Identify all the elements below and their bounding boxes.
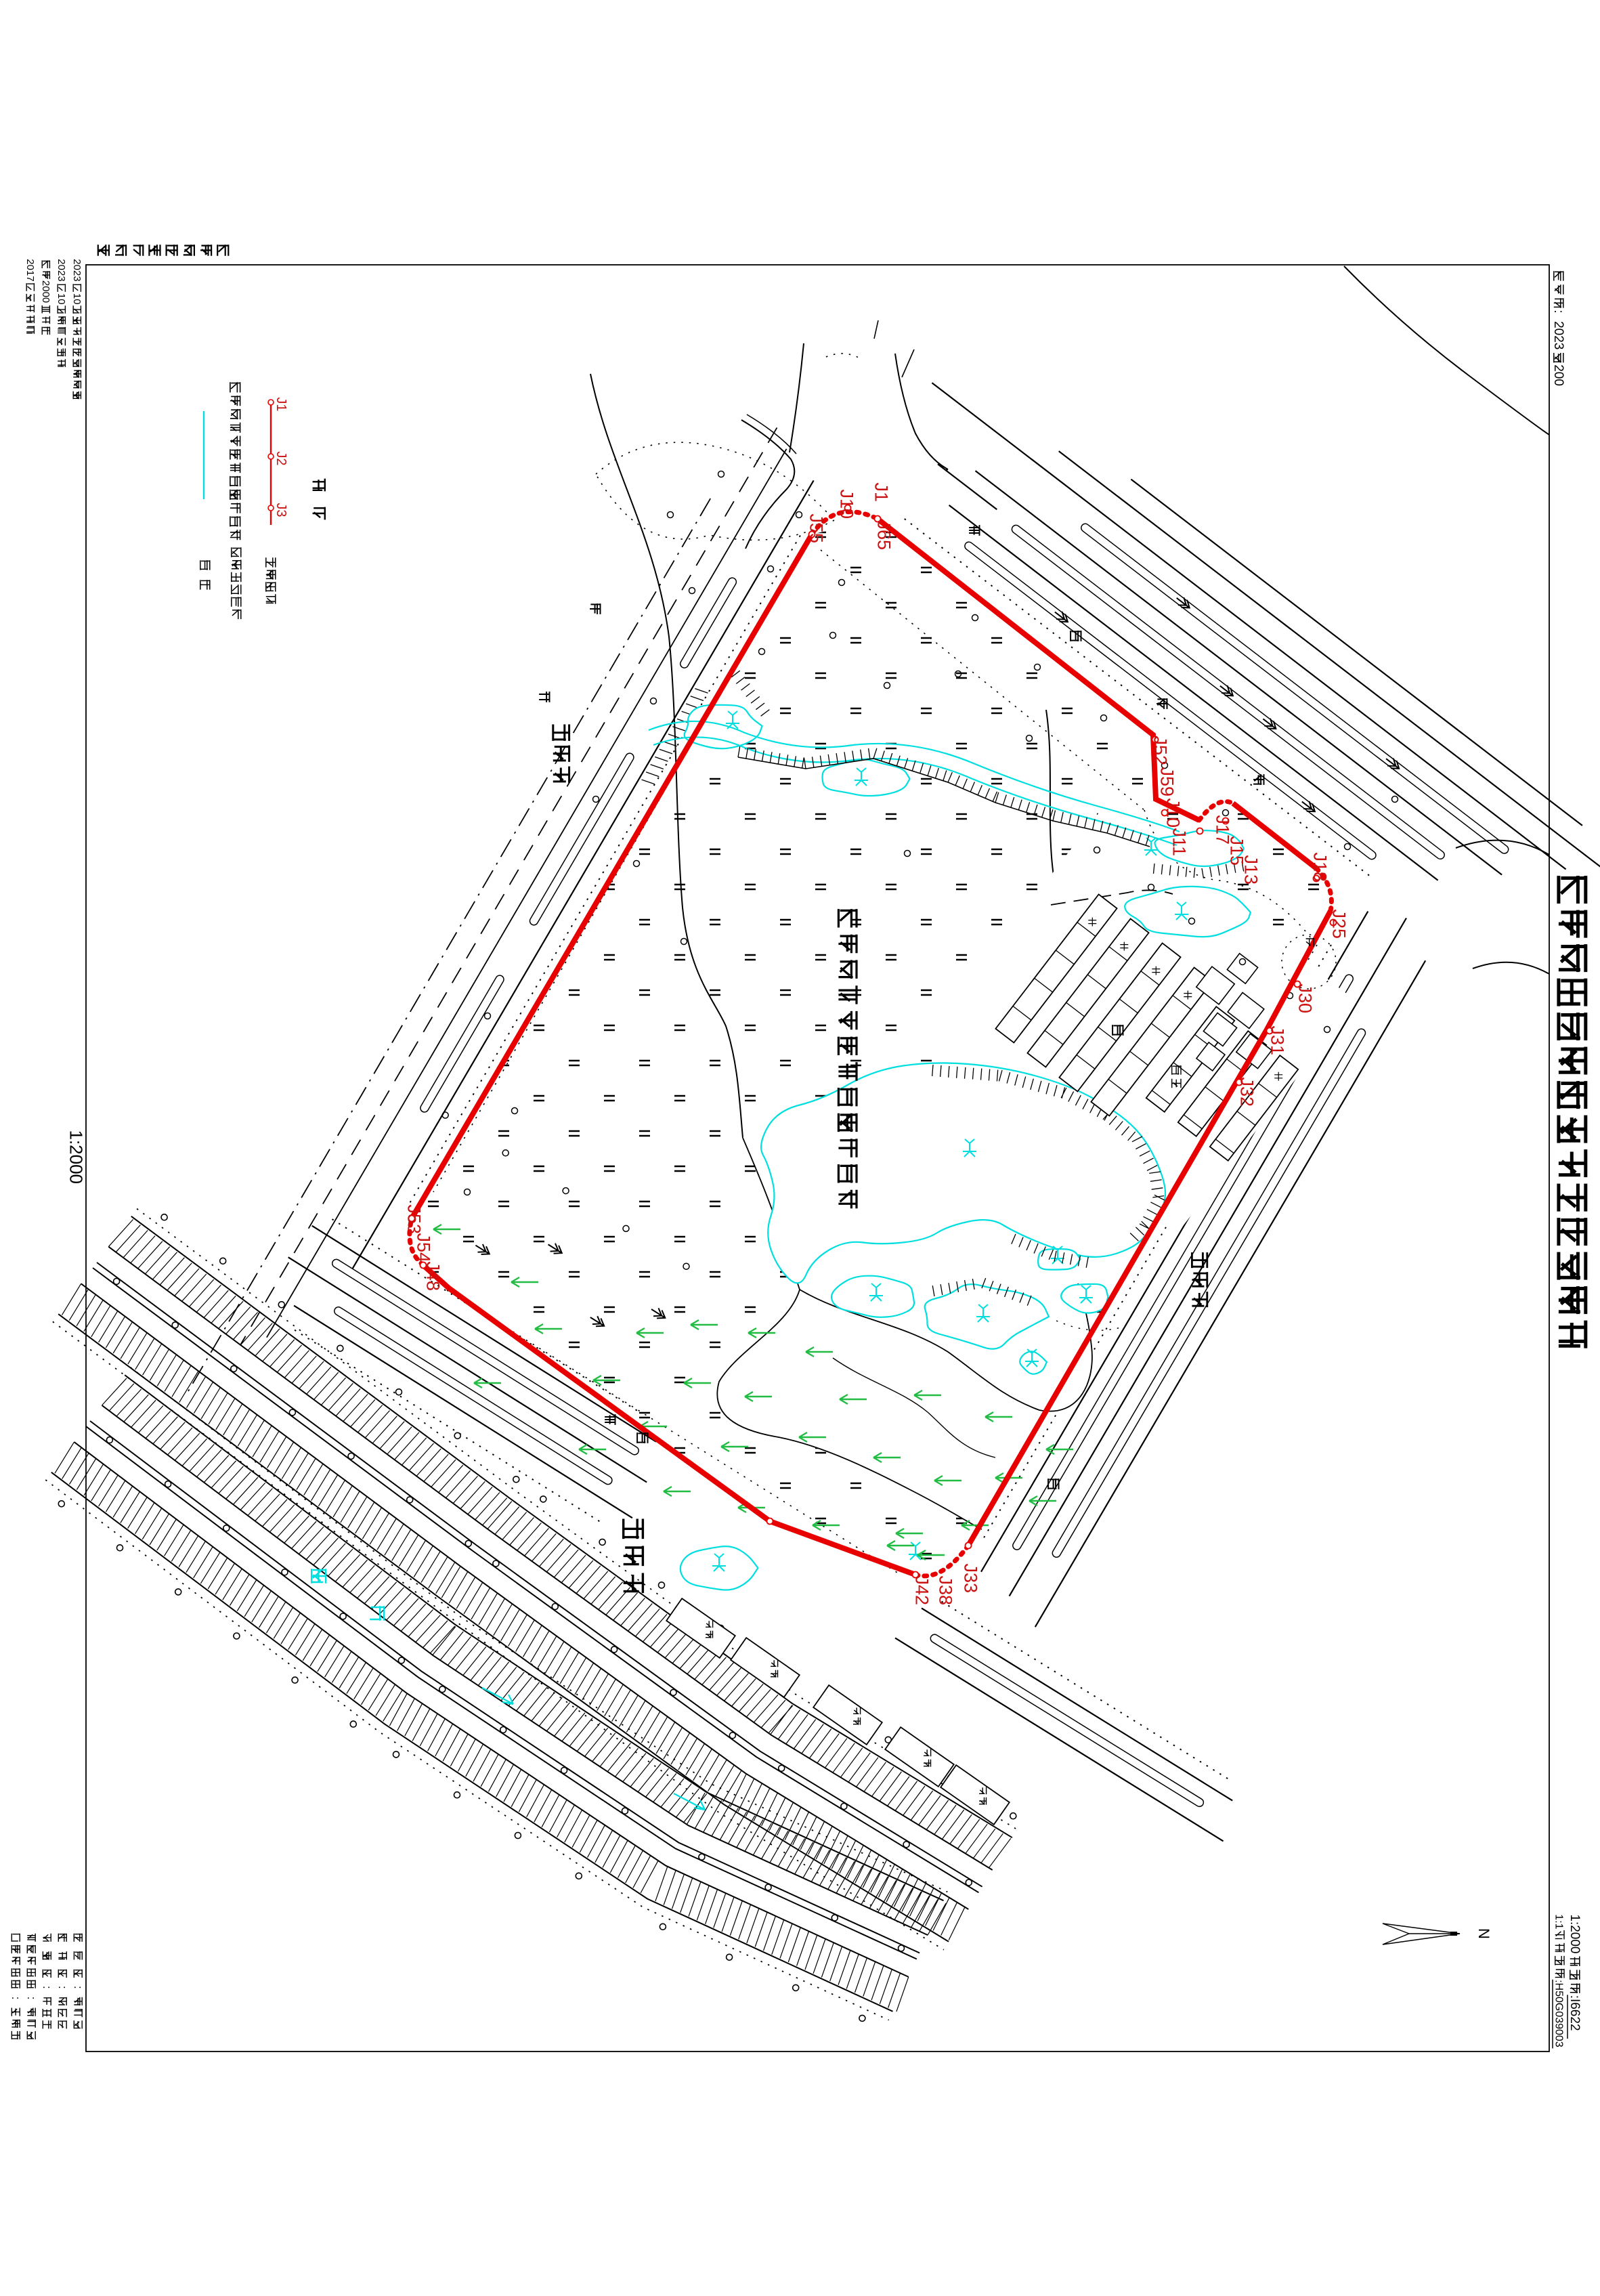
svg-text:J33: J33 (961, 1564, 981, 1594)
svg-text:J48: J48 (423, 1262, 444, 1292)
svg-text:N: N (1475, 1928, 1492, 1939)
svg-text::H50G039003: :H50G039003 (1553, 1980, 1565, 2047)
svg-text:J2: J2 (274, 451, 288, 465)
svg-text:2000: 2000 (40, 280, 51, 303)
svg-text:J54: J54 (414, 1233, 434, 1263)
svg-text:J52: J52 (1150, 736, 1171, 766)
svg-text:J55: J55 (806, 514, 827, 544)
svg-text:J32: J32 (1237, 1078, 1257, 1107)
svg-text:10: 10 (71, 293, 83, 305)
svg-text:1:1: 1:1 (1553, 1914, 1565, 1929)
svg-text::: : (41, 1986, 53, 1989)
svg-text:1:2000: 1:2000 (1567, 1914, 1582, 1953)
svg-text:J1: J1 (274, 397, 288, 411)
svg-text:J1: J1 (871, 483, 892, 503)
svg-text:2017: 2017 (24, 259, 36, 281)
svg-text:2023: 2023 (1551, 321, 1565, 349)
svg-text:J31: J31 (1268, 1026, 1288, 1056)
svg-text::: : (25, 1997, 38, 2000)
svg-text:1:2000: 1:2000 (66, 1130, 87, 1185)
svg-text:J59: J59 (1157, 767, 1177, 797)
svg-text:2023: 2023 (56, 259, 67, 281)
svg-text:J65: J65 (874, 521, 894, 551)
svg-text:J10: J10 (837, 490, 857, 519)
svg-text:J53: J53 (404, 1205, 425, 1235)
svg-text:J25: J25 (1329, 910, 1349, 939)
svg-text:J3: J3 (274, 503, 288, 517)
svg-text::: : (56, 1986, 69, 1989)
svg-text::: : (72, 1986, 85, 1989)
svg-text:200: 200 (1551, 364, 1565, 386)
svg-text:J42: J42 (912, 1576, 932, 1606)
svg-text::: : (1551, 310, 1565, 313)
svg-text:J18: J18 (1310, 853, 1331, 883)
svg-text::: : (9, 1997, 22, 2000)
svg-text:2023: 2023 (71, 259, 83, 281)
svg-text::I6622: :I6622 (1567, 1995, 1582, 2031)
svg-text:J10: J10 (1163, 799, 1184, 828)
svg-text:J38: J38 (936, 1576, 956, 1606)
svg-text:10: 10 (56, 293, 67, 305)
svg-text:J30: J30 (1295, 984, 1316, 1014)
svg-text:J11: J11 (1169, 828, 1190, 857)
svg-text:J13: J13 (1241, 855, 1261, 885)
